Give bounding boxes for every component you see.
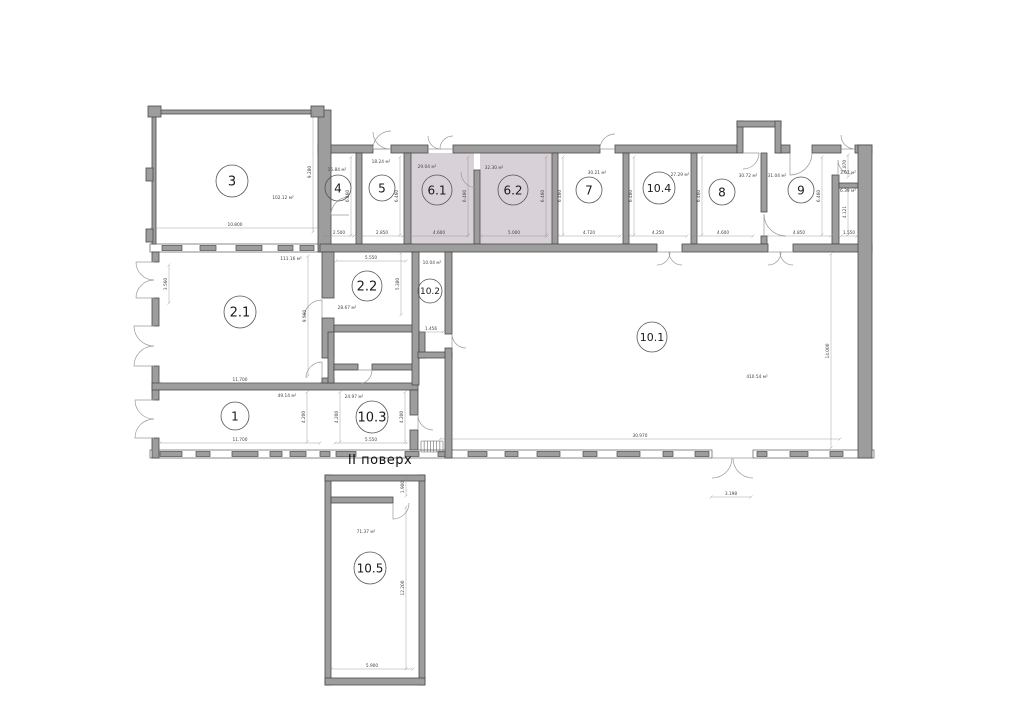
- dim-label: 1.550: [843, 230, 856, 236]
- dim-label: 1.456: [425, 326, 438, 332]
- dim-label: 5.550: [365, 255, 378, 261]
- wall: [325, 678, 425, 685]
- floor-plan-drawing: 10.8009.2802.5002.8504.6005.0004.7204.25…: [0, 0, 1024, 724]
- window: [278, 246, 293, 251]
- wall: [331, 497, 393, 503]
- window: [236, 246, 262, 251]
- room-number-6.1: 6.1: [427, 183, 446, 197]
- wall: [737, 121, 781, 127]
- door-arc: [712, 458, 732, 478]
- room-number-8: 8: [718, 185, 726, 199]
- dimension: 3.560: [163, 264, 171, 305]
- door-arc: [841, 135, 855, 149]
- wall: [410, 390, 418, 415]
- door-arc: [418, 415, 433, 430]
- room-number-10.1: 10.1: [640, 331, 665, 344]
- dim-label: 4.200: [334, 411, 340, 424]
- dimension: 9.280: [307, 111, 315, 234]
- wall: [682, 244, 768, 252]
- dimension: 9.560: [302, 255, 310, 378]
- wall: [832, 175, 839, 244]
- door-arc: [743, 153, 759, 169]
- window: [162, 246, 182, 251]
- wall: [419, 475, 425, 685]
- dimension: 4.200: [301, 391, 309, 444]
- wall: [404, 153, 411, 244]
- dim-label: 4.600: [433, 230, 446, 236]
- dim-label: 4.200: [301, 411, 307, 424]
- wall-band: [753, 450, 874, 458]
- dimension: 3.198: [710, 491, 753, 499]
- room-area-4: 15.84 м²: [328, 167, 347, 173]
- wall: [410, 430, 418, 450]
- door-arc: [134, 346, 154, 366]
- window: [200, 246, 216, 251]
- window: [790, 452, 808, 457]
- room-number-2.2: 2.2: [357, 280, 378, 295]
- wall: [858, 145, 872, 458]
- window: [160, 452, 182, 457]
- room-area-10.2: 10.04 м²: [423, 260, 442, 266]
- dimension: 4.720: [557, 230, 622, 238]
- door-arc: [764, 214, 786, 236]
- dim-label: 4.121: [842, 206, 848, 219]
- dimension: 5.550: [335, 255, 408, 263]
- wall: [320, 244, 657, 252]
- wall: [453, 145, 600, 153]
- door-arc: [373, 132, 390, 149]
- dim-label: 11.700: [232, 377, 247, 383]
- dimension: 30.970: [439, 433, 842, 441]
- wall: [812, 145, 841, 153]
- wall: [356, 153, 362, 244]
- dimension: 4.250: [628, 230, 689, 238]
- wall: [334, 325, 418, 332]
- door-arc: [669, 252, 682, 265]
- room-area-small: 6.39 м²: [840, 188, 856, 194]
- door-arc: [373, 131, 391, 149]
- window: [270, 452, 282, 457]
- room-area-9: 31.04 м²: [768, 173, 787, 179]
- dimension: 6.460: [394, 156, 402, 237]
- door-arc: [134, 326, 154, 346]
- room-area-3: 102.12 м²: [272, 195, 294, 201]
- dimension: 5.380: [395, 252, 403, 317]
- wall: [445, 252, 452, 334]
- window: [617, 452, 640, 457]
- floor-label: II поверх: [328, 453, 432, 468]
- room-number-7: 7: [585, 183, 593, 197]
- room-number-6.2: 6.2: [503, 183, 522, 197]
- window: [757, 452, 767, 457]
- dimension: 14.000: [825, 253, 833, 450]
- wall: [445, 348, 452, 458]
- wall: [322, 252, 334, 298]
- dimension: 2.850: [360, 230, 405, 238]
- window: [196, 452, 210, 457]
- dim-label: 5.000: [508, 230, 521, 236]
- dimension: 12.200: [400, 506, 408, 671]
- window: [695, 452, 709, 457]
- dim-label: 4.850: [793, 230, 806, 236]
- dimension: 5.900: [330, 663, 415, 671]
- dim-label: 3.198: [725, 491, 738, 497]
- dim-label: 10.800: [227, 222, 242, 228]
- door-arc: [358, 370, 372, 384]
- wall: [146, 229, 153, 242]
- wall: [328, 332, 334, 383]
- window: [663, 452, 673, 457]
- room-number-2.1: 2.1: [230, 306, 251, 321]
- wall: [391, 145, 428, 153]
- door-arc: [135, 419, 154, 438]
- wall: [152, 438, 159, 458]
- door-arc: [136, 262, 154, 280]
- dim-label: 2.500: [333, 230, 346, 236]
- room-number-10.2: 10.2: [420, 287, 440, 297]
- window: [830, 452, 843, 457]
- dim-label: 5.900: [366, 663, 379, 669]
- wall: [152, 383, 418, 390]
- dim-label: 12.200: [400, 580, 406, 595]
- dim-label: 11.700: [232, 437, 247, 443]
- dimension: 11.700: [159, 437, 322, 445]
- door-arc: [440, 136, 453, 149]
- dimension: 10.800: [150, 222, 321, 230]
- room-area-2.2: 28.67 м²: [338, 305, 357, 311]
- window: [468, 452, 487, 457]
- room-area-6.1: 29.04 м²: [418, 164, 437, 170]
- room-number-10.3: 10.3: [358, 411, 387, 426]
- room-number-10.5: 10.5: [357, 561, 384, 575]
- dimension: 4.600: [692, 230, 755, 238]
- wall: [325, 475, 331, 685]
- wall: [334, 364, 358, 370]
- door-arc: [733, 458, 753, 478]
- door-arc: [768, 252, 781, 265]
- wall: [372, 364, 418, 370]
- wall: [148, 106, 161, 117]
- dimension: 5.550: [334, 437, 409, 445]
- room-number-1: 1: [231, 409, 239, 423]
- door-arc: [790, 153, 812, 175]
- dim-label: 6.460: [557, 190, 563, 203]
- dimension: 4.121: [842, 188, 850, 237]
- wall: [839, 183, 858, 188]
- dim-label: 4.720: [583, 230, 596, 236]
- wall: [146, 168, 153, 181]
- door-arc: [657, 252, 670, 265]
- wall: [318, 110, 331, 252]
- wall: [152, 252, 159, 262]
- door-arc: [452, 334, 466, 348]
- room-area-6.2: 32.30 м²: [485, 165, 504, 171]
- dimension: 4.200: [334, 391, 342, 444]
- window: [232, 452, 258, 457]
- dim-label: 4.600: [717, 230, 730, 236]
- dim-label: 6.460: [816, 190, 822, 203]
- room-number-3: 3: [228, 175, 236, 190]
- room-area-2.1: 111.16 м²: [280, 256, 302, 262]
- wall: [761, 153, 767, 212]
- dimension: 6.460: [816, 156, 824, 237]
- dim-label: 9.280: [307, 166, 313, 179]
- room-number-5: 5: [378, 181, 386, 195]
- room-number-10.4: 10.4: [647, 182, 672, 195]
- dim-label: 30.970: [632, 433, 647, 439]
- window: [505, 452, 518, 457]
- room-area-10.5: 71.37 м²: [357, 529, 376, 535]
- dimension: 4.200: [399, 391, 407, 444]
- door-arc: [393, 503, 409, 519]
- door-arc: [135, 400, 154, 419]
- room-area-10.1: 410.54 м²: [746, 374, 768, 380]
- dim-label: 3.560: [163, 278, 169, 291]
- dim-label: 4.250: [652, 230, 665, 236]
- room-number-9: 9: [797, 183, 805, 197]
- dim-label: 1.900: [400, 481, 406, 494]
- dim-label: 5.550: [365, 437, 378, 443]
- room-number-4: 4: [334, 181, 342, 195]
- window: [583, 452, 597, 457]
- room-area-5: 18.24 м²: [372, 159, 391, 165]
- wall: [152, 110, 318, 114]
- room-area-small: 3.07 м²: [840, 170, 856, 176]
- door-arc: [600, 134, 615, 149]
- window: [537, 452, 560, 457]
- window: [290, 452, 306, 457]
- window: [300, 246, 314, 251]
- dim-label: 2.850: [376, 230, 389, 236]
- wall: [615, 145, 737, 153]
- dim-label: 5.380: [395, 278, 401, 291]
- wall: [325, 475, 425, 481]
- dim-label: 6.460: [462, 190, 468, 203]
- dim-label: 6.460: [628, 190, 634, 203]
- room-area-10.3: 24.97 м²: [345, 394, 364, 400]
- room-area-8: 30.72 м²: [739, 173, 758, 179]
- door-arc: [780, 252, 793, 265]
- dim-label: 14.000: [825, 343, 831, 358]
- wall: [775, 121, 781, 153]
- dim-label: 6.460: [696, 190, 702, 203]
- floor-plan-canvas: 10.8009.2802.5002.8504.6005.0004.7204.25…: [0, 0, 1024, 724]
- room-area-1: 49.14 м²: [278, 393, 297, 399]
- wall: [152, 298, 159, 326]
- room-area-7: 30.21 м²: [588, 170, 607, 176]
- dim-label: 9.560: [302, 310, 308, 323]
- wall: [761, 236, 767, 244]
- room-area-10.4: 27.29 м²: [671, 172, 690, 178]
- dim-label: 4.200: [399, 411, 405, 424]
- door-arc: [136, 280, 154, 298]
- dim-label: 6.460: [540, 190, 546, 203]
- door-arc: [428, 136, 441, 149]
- wall: [412, 252, 419, 385]
